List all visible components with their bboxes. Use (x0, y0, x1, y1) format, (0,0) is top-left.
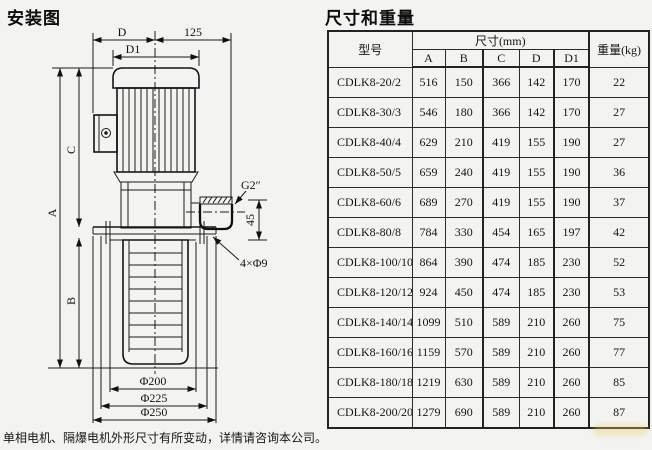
weight-cell: 36 (589, 158, 649, 188)
model-cell: CDLK8-40/4 (328, 128, 412, 158)
table-row: CDLK8-120/12 924 450 474 185 230 53 (328, 278, 649, 308)
dim-c-cell: 589 (483, 338, 519, 368)
dim-b-cell: 510 (445, 308, 483, 338)
catalog-page: 安装图 D 125 D1 (0, 0, 652, 450)
dim-b-cell: 150 (445, 67, 483, 98)
mounting-holes-callout: 4×Φ9 (213, 237, 268, 270)
table-row: CDLK8-160/16 1159 570 589 210 260 77 (328, 338, 649, 368)
dim-d-cell: 155 (519, 128, 554, 158)
dim-dia200: Φ200 (110, 374, 196, 389)
weight-cell: 22 (589, 67, 649, 98)
dim-d1-cell: 170 (554, 98, 589, 128)
dim-a-cell: 1219 (412, 368, 445, 398)
dim-d-cell: 142 (519, 67, 554, 98)
dim-label-dia250: Φ250 (141, 405, 168, 419)
dim-b-cell: 210 (445, 128, 483, 158)
model-cell: CDLK8-200/20 (328, 398, 412, 429)
dim-label-4xphi9: 4×Φ9 (240, 256, 268, 270)
dim-d-cell: 165 (519, 218, 554, 248)
dim-b-cell: 450 (445, 278, 483, 308)
weight-cell: 75 (589, 308, 649, 338)
dim-label-a: A (45, 208, 59, 217)
dim-d1-cell: 260 (554, 398, 589, 429)
dim-d-cell: 210 (519, 398, 554, 429)
dim-a-cell: 629 (412, 128, 445, 158)
dim-d-and-125: D 125 (93, 25, 231, 40)
dim-c-cell: 589 (483, 398, 519, 429)
dim-a-cell: 924 (412, 278, 445, 308)
dim-label-b: B (64, 297, 78, 305)
dim-d1-cell: 260 (554, 368, 589, 398)
dim-c-cell: 474 (483, 248, 519, 278)
model-cell: CDLK8-60/6 (328, 188, 412, 218)
dim-d1-cell: 170 (554, 67, 589, 98)
footnote: 单相电机、隔爆电机外形尺寸有所变动，详情请咨询本公司。 (3, 429, 333, 446)
table-row: CDLK8-20/2 516 150 366 142 170 22 (328, 67, 649, 98)
dim-d1: D1 (113, 42, 199, 57)
table-row: CDLK8-140/14 1099 510 589 210 260 75 (328, 308, 649, 338)
dim-c-cell: 419 (483, 188, 519, 218)
dim-d1-cell: 230 (554, 278, 589, 308)
dim-label-d: D (118, 25, 127, 39)
model-cell: CDLK8-140/14 (328, 308, 412, 338)
dim-c-cell: 474 (483, 278, 519, 308)
dim-d1-cell: 190 (554, 158, 589, 188)
dim-label-125: 125 (184, 25, 202, 39)
dim-45: 45 (243, 200, 267, 240)
dim-b-cell: 240 (445, 158, 483, 188)
model-cell: CDLK8-80/8 (328, 218, 412, 248)
table-row: CDLK8-100/10 864 390 474 185 230 52 (328, 248, 649, 278)
dim-d1-cell: 260 (554, 338, 589, 368)
motor-cap (113, 68, 199, 88)
dim-b-cell: 690 (445, 398, 483, 429)
table-row: CDLK8-180/18 1219 630 589 210 260 85 (328, 368, 649, 398)
dim-c-cell: 419 (483, 128, 519, 158)
dim-a-cell: 864 (412, 248, 445, 278)
dim-d1-cell: 190 (554, 128, 589, 158)
dim-a-cell: 1159 (412, 338, 445, 368)
col-header-b: B (445, 50, 483, 68)
spec-table: 型号 尺寸(mm) 重量(kg) A B C D D1 CDLK8-20/2 5… (327, 30, 650, 429)
col-header-a: A (412, 50, 445, 68)
installation-diagram: D 125 D1 A C B (0, 0, 320, 450)
dim-d1-cell: 260 (554, 308, 589, 338)
watermark-smudge (593, 424, 648, 436)
dimensions-table-title: 尺寸和重量 (325, 4, 415, 29)
weight-cell: 77 (589, 338, 649, 368)
model-cell: CDLK8-120/12 (328, 278, 412, 308)
weight-cell: 42 (589, 218, 649, 248)
dim-dia250: Φ250 (93, 405, 216, 420)
pump-barrel (110, 240, 196, 364)
motor-bottom-band (114, 172, 198, 182)
dim-d-cell: 185 (519, 278, 554, 308)
dim-d-cell: 155 (519, 188, 554, 218)
col-header-dims-group: 尺寸(mm) (412, 31, 589, 50)
weight-cell: 52 (589, 248, 649, 278)
dim-c-cell: 366 (483, 67, 519, 98)
dim-label-dia225: Φ225 (141, 391, 168, 405)
dim-b-cell: 270 (445, 188, 483, 218)
dim-c-cell: 589 (483, 308, 519, 338)
weight-cell: 53 (589, 278, 649, 308)
model-cell: CDLK8-180/18 (328, 368, 412, 398)
dim-dia225: Φ225 (101, 391, 207, 406)
col-header-d: D (519, 50, 554, 68)
model-cell: CDLK8-30/3 (328, 98, 412, 128)
dim-b-cell: 180 (445, 98, 483, 128)
dim-b-cell: 330 (445, 218, 483, 248)
dim-a-cell: 546 (412, 98, 445, 128)
dim-label-d1: D1 (126, 42, 141, 56)
dim-c-cell: 589 (483, 368, 519, 398)
weight-cell: 37 (589, 188, 649, 218)
dim-label-c: C (64, 146, 78, 154)
dim-a-cell: 689 (412, 188, 445, 218)
dim-label-dia200: Φ200 (140, 374, 167, 388)
dim-d-cell: 210 (519, 338, 554, 368)
dim-a-cell: 1099 (412, 308, 445, 338)
dim-b: B (64, 238, 79, 368)
model-cell: CDLK8-100/10 (328, 248, 412, 278)
model-cell: CDLK8-20/2 (328, 67, 412, 98)
dim-c-cell: 454 (483, 218, 519, 248)
weight-cell: 85 (589, 368, 649, 398)
dim-d-cell: 142 (519, 98, 554, 128)
dim-a: A (45, 68, 60, 368)
dim-d1-cell: 190 (554, 188, 589, 218)
dim-d-cell: 210 (519, 368, 554, 398)
dim-a-cell: 516 (412, 67, 445, 98)
dim-d1-cell: 197 (554, 218, 589, 248)
dim-d-cell: 210 (519, 308, 554, 338)
weight-cell: 27 (589, 98, 649, 128)
motor-fins (117, 88, 195, 172)
spec-table-body: CDLK8-20/2 516 150 366 142 170 22 CDLK8-… (328, 67, 649, 428)
dim-b-cell: 630 (445, 368, 483, 398)
model-cell: CDLK8-50/5 (328, 158, 412, 188)
model-cell: CDLK8-160/16 (328, 338, 412, 368)
col-header-weight: 重量(kg) (589, 31, 649, 67)
table-row: CDLK8-80/8 784 330 454 165 197 42 (328, 218, 649, 248)
dim-d-cell: 185 (519, 248, 554, 278)
dim-c: C (64, 68, 79, 227)
dim-label-45: 45 (243, 214, 257, 226)
weight-cell: 27 (589, 128, 649, 158)
dim-a-cell: 1279 (412, 398, 445, 429)
dim-label-g2: G2″ (241, 178, 261, 192)
table-row: CDLK8-60/6 689 270 419 155 190 37 (328, 188, 649, 218)
table-row: CDLK8-40/4 629 210 419 155 190 27 (328, 128, 649, 158)
outlet-pipe (186, 197, 245, 229)
dim-d1-cell: 230 (554, 248, 589, 278)
dim-a-cell: 784 (412, 218, 445, 248)
dim-d-cell: 155 (519, 158, 554, 188)
col-header-d1: D1 (554, 50, 589, 68)
dim-b-cell: 390 (445, 248, 483, 278)
table-row: CDLK8-50/5 659 240 419 155 190 36 (328, 158, 649, 188)
junction-box (94, 115, 117, 152)
spec-table-container: 型号 尺寸(mm) 重量(kg) A B C D D1 CDLK8-20/2 5… (327, 30, 650, 429)
header-row-group: 型号 尺寸(mm) 重量(kg) (328, 31, 649, 50)
col-header-c: C (483, 50, 519, 68)
col-header-model: 型号 (328, 31, 412, 67)
pump-head (121, 182, 200, 228)
dim-c-cell: 366 (483, 98, 519, 128)
dim-a-cell: 659 (412, 158, 445, 188)
dim-c-cell: 419 (483, 158, 519, 188)
table-row: CDLK8-30/3 546 180 366 142 170 27 (328, 98, 649, 128)
dim-b-cell: 570 (445, 338, 483, 368)
